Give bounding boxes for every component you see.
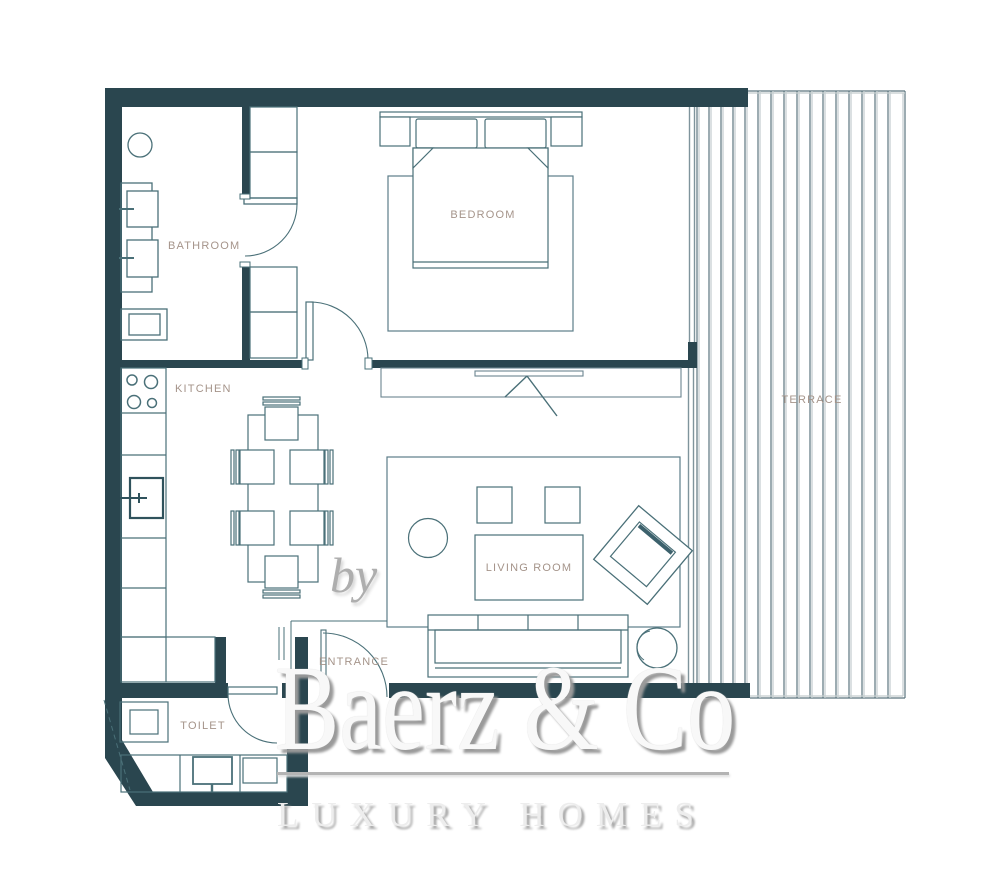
bathroom-door-arc — [245, 204, 297, 256]
chair-seat — [240, 511, 274, 545]
chair-seat — [265, 407, 298, 440]
entrance-label: ENTRANCE — [319, 656, 389, 668]
bed-pillow-left — [416, 119, 477, 148]
floorplan-canvas: TERRACE BATHROOM — [0, 0, 1000, 892]
stove-burner — [148, 399, 157, 408]
bed — [413, 148, 548, 268]
chair-seat — [290, 450, 324, 484]
bedroom-door-arc — [310, 302, 368, 360]
closet-cell — [250, 312, 297, 358]
toilet-vanity-dividers — [180, 755, 240, 792]
bed-pillow-right — [485, 119, 546, 148]
wall-toilet-bottom — [136, 792, 308, 806]
chair-back — [325, 450, 328, 484]
nightstand-right — [551, 117, 582, 146]
wall-mid-left — [105, 360, 302, 368]
chair-back — [263, 590, 300, 593]
chair-back — [231, 450, 234, 484]
pouf — [545, 487, 580, 523]
wall-top — [105, 88, 748, 107]
toilet-fixture-seat — [130, 710, 158, 734]
terrace-label: TERRACE — [782, 394, 843, 406]
bedroom-room: BEDROOM — [302, 112, 582, 369]
floorplan-page: TERRACE BATHROOM — [0, 0, 1000, 892]
stove-burner — [145, 376, 158, 389]
wall-entrance-left — [295, 637, 308, 792]
bathroom-label: BATHROOM — [168, 240, 240, 252]
nightstand-left — [380, 117, 410, 146]
sliding-door-band — [381, 368, 681, 416]
bedroom-door-leaf — [306, 302, 313, 360]
counter-dividers — [121, 413, 166, 588]
chair-back — [263, 402, 300, 405]
toilet-sink — [193, 757, 232, 784]
wall-bottom-a — [105, 683, 228, 698]
bedroom-label: BEDROOM — [450, 209, 515, 221]
living-room: LIVING ROOM — [387, 457, 692, 677]
closet-column — [250, 107, 297, 358]
window-wall-terrace — [689, 107, 695, 683]
wall-bathroom-right-lower — [242, 267, 250, 362]
chair-back — [236, 450, 239, 484]
wall-bathroom-right-upper — [242, 107, 250, 198]
kitchen-counter — [121, 368, 166, 637]
chair-back — [263, 595, 300, 598]
toilet-fixture — [120, 702, 168, 742]
toilet-door-arc — [228, 694, 277, 743]
stove-burner — [127, 375, 137, 385]
bathroom-basin-icon — [128, 133, 152, 157]
door-jamb — [302, 358, 308, 369]
closet-cell — [250, 267, 297, 312]
closet-cell — [250, 107, 297, 152]
toilet-basin — [243, 758, 277, 783]
wall-kitchen-stub — [215, 637, 226, 683]
door-jamb — [365, 358, 372, 369]
sliding-panel — [475, 371, 583, 376]
bathroom-toilet-seat — [129, 314, 160, 335]
chair-back — [231, 511, 234, 545]
pouf — [477, 487, 512, 523]
kitchen-room: KITCHEN — [120, 368, 232, 682]
wall-bottom-c — [389, 683, 750, 698]
stove-burner — [128, 396, 141, 409]
wall-mid-right — [372, 360, 695, 368]
chair-seat — [240, 450, 274, 484]
kitchen-counter-bottom — [121, 637, 215, 682]
sliding-direction-arrow — [505, 376, 557, 416]
living-room-label: LIVING ROOM — [486, 562, 573, 574]
toilet-label: TOILET — [180, 720, 226, 732]
side-table — [409, 519, 448, 558]
chair-back — [236, 511, 239, 545]
chair-seat — [290, 511, 324, 545]
dining-set — [231, 397, 333, 598]
bathroom-room: BATHROOM — [119, 133, 297, 340]
terrace-deck: TERRACE — [697, 91, 905, 698]
chair-back — [325, 511, 328, 545]
wall-right-stub — [688, 342, 697, 368]
wall-toilet-right — [287, 745, 295, 792]
chair-back — [330, 450, 333, 484]
toilet-door-leaf — [228, 687, 277, 694]
bathroom-door-leaf — [244, 198, 297, 204]
chair-seat — [265, 556, 298, 588]
chair-back — [330, 511, 333, 545]
closet-cell — [250, 152, 297, 198]
door-jamb — [240, 194, 250, 199]
bed-headboard — [380, 112, 582, 117]
kitchen-label: KITCHEN — [175, 383, 232, 395]
chair-back — [263, 397, 300, 400]
armchair — [594, 506, 693, 605]
wall-left — [105, 88, 122, 748]
door-jamb — [240, 262, 250, 267]
kitchen-sink-tap — [120, 493, 147, 503]
